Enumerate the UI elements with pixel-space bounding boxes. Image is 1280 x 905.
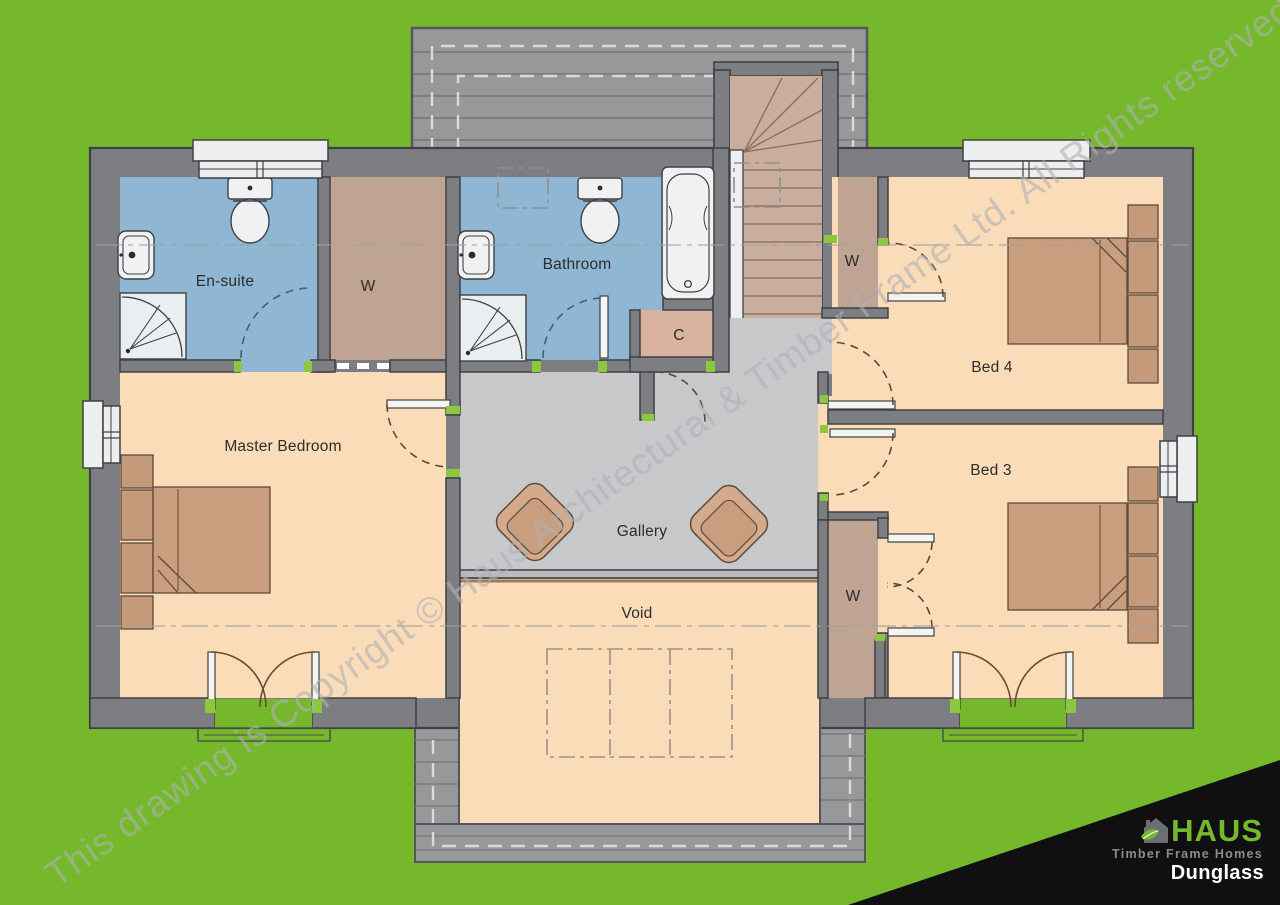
toilet-icon [228, 178, 272, 243]
staircase [714, 62, 838, 324]
gallery-stair-landing [729, 318, 838, 374]
window-right-wall [1160, 436, 1197, 502]
room-wardrobe-bed4 [838, 177, 878, 308]
toilet-icon [578, 178, 622, 243]
room-label-bed4: Bed 4 [971, 359, 1013, 377]
window-top-left [193, 140, 328, 178]
window-top-right [963, 140, 1090, 178]
logo-tagline: Timber Frame Homes [1112, 847, 1263, 861]
room-label-ensuite: En-suite [196, 273, 254, 291]
room-label-bed3: Bed 3 [970, 462, 1012, 480]
room-label-bathroom: Bathroom [543, 256, 612, 274]
room-label-cupboard: C [673, 327, 684, 345]
floor-plan-drawing [0, 0, 1280, 905]
room-wardrobe-master [330, 177, 446, 360]
floor-plan-page: En-suite W Bathroom C Master Bedroom Gal… [0, 0, 1280, 905]
shower-icon [120, 293, 186, 359]
window-left-wall [83, 401, 120, 468]
haus-house-icon [1140, 815, 1172, 845]
shower-icon [460, 295, 526, 361]
stairs-floor [730, 76, 822, 322]
plan-name: Dunglass [1171, 862, 1264, 885]
basin-icon [458, 231, 494, 279]
room-label-gallery: Gallery [617, 523, 668, 541]
room-wardrobe-bed3 [828, 518, 878, 698]
room-label-wardrobe-master: W [361, 278, 376, 296]
room-label-wardrobe-bed3: W [846, 588, 861, 606]
stair-handrail [730, 150, 743, 324]
room-label-master-bedroom: Master Bedroom [224, 438, 341, 456]
room-label-wardrobe-bed4: W [845, 253, 860, 271]
bathtub-icon [662, 167, 714, 299]
gallery-balustrade [459, 570, 820, 578]
basin-icon [118, 231, 154, 279]
logo-brand: HAUS [1171, 813, 1263, 849]
room-label-void: Void [622, 605, 653, 623]
